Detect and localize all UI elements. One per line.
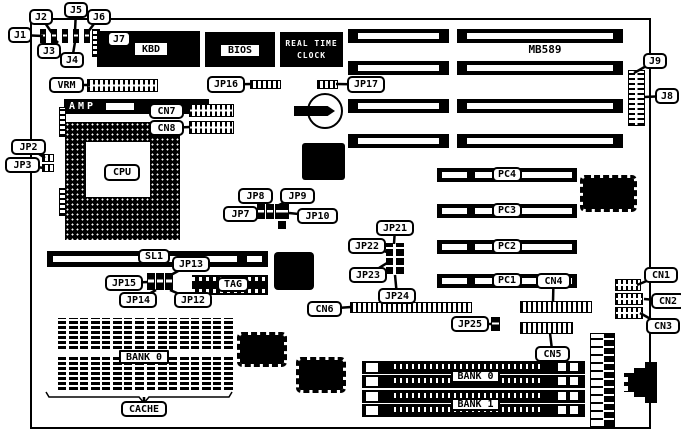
label-cn6: CN6	[307, 301, 342, 317]
label-jp12: JP12	[174, 292, 212, 308]
jp25-jumper	[491, 317, 500, 331]
label-jp25: JP25	[451, 316, 489, 332]
label-pc1: PC1	[492, 273, 522, 288]
din-notch-lower	[624, 386, 628, 391]
label-jp13: JP13	[172, 256, 210, 272]
amp-bar: AMP	[64, 99, 209, 114]
isa-slot-4-right	[457, 134, 623, 148]
label-vrm: VRM	[49, 77, 84, 93]
isa-slot-1-left	[348, 29, 449, 43]
sl1-slot-key	[237, 256, 247, 262]
label-jp14: JP14	[119, 292, 157, 308]
isa-slot-1-right	[457, 29, 623, 43]
cn5-connector	[520, 322, 573, 334]
jumper-j1	[40, 29, 46, 43]
label-cn5: CN5	[535, 346, 570, 362]
label-tag: TAG	[217, 277, 249, 292]
label-jp23: JP23	[349, 267, 387, 283]
label-bank0-simm: BANK 0	[451, 370, 500, 383]
label-cn7: CN7	[149, 103, 184, 119]
label-jp21: JP21	[376, 220, 414, 236]
jp10-pad	[278, 221, 286, 229]
jp21-24-jumper-block	[386, 243, 404, 274]
qfp-chip-left	[237, 332, 287, 367]
label-model: MB589	[505, 42, 585, 56]
din-connector	[645, 362, 657, 403]
label-bank0-cache: BANK 0	[119, 350, 169, 364]
label-j6: J6	[87, 9, 111, 25]
jp15-jumper	[147, 273, 155, 290]
label-j1: J1	[8, 27, 32, 43]
j8-j9-power-connector	[628, 70, 645, 126]
label-cn2: CN2	[651, 293, 681, 309]
label-bios: BIOS	[219, 43, 261, 58]
jp14-jumper	[156, 273, 164, 290]
jp16-jumper	[250, 80, 281, 89]
din-connector-step	[634, 368, 645, 397]
label-cn4: CN4	[536, 273, 571, 289]
chipset-chip-middle	[274, 252, 314, 290]
label-jp22: JP22	[348, 238, 386, 254]
amp-label: AMP	[69, 101, 96, 112]
cn1-connector	[615, 279, 641, 291]
jumper-j3	[62, 29, 68, 43]
jp7-jumper	[257, 204, 265, 219]
label-jp24: JP24	[378, 288, 416, 304]
cache-chip	[213, 318, 233, 351]
isa-slot-4-left	[348, 134, 449, 148]
label-cache: CACHE	[121, 401, 167, 417]
cache-chip	[169, 318, 189, 351]
qfp-chip-bottom	[296, 357, 346, 393]
jp9-jp10-jumper	[275, 204, 289, 219]
label-jp17: JP17	[347, 76, 385, 93]
battery-clip	[294, 106, 335, 116]
cache-chip	[191, 355, 211, 392]
jumper-j2	[51, 29, 57, 43]
label-jp16: JP16	[207, 76, 245, 93]
label-jp15: JP15	[105, 275, 143, 291]
jp17-jumper	[317, 80, 338, 89]
label-j7: J7	[107, 31, 131, 47]
label-sl1: SL1	[138, 249, 170, 264]
label-pc3: PC3	[492, 203, 522, 218]
label-j3: J3	[37, 43, 61, 59]
cache-chip	[80, 355, 100, 392]
rtc-label-line2: CLOCK	[297, 50, 326, 61]
label-j4: J4	[60, 52, 84, 68]
label-jp9: JP9	[280, 188, 315, 204]
cache-chip	[124, 318, 144, 351]
cache-chip	[58, 318, 78, 351]
qfp-chip-right	[580, 175, 637, 212]
cn7-connector	[189, 104, 234, 117]
label-cn1: CN1	[644, 267, 678, 283]
jumper-j4	[73, 29, 79, 43]
label-jp10: JP10	[297, 208, 338, 224]
label-cn3: CN3	[646, 318, 680, 334]
label-jp8: JP8	[238, 188, 273, 204]
label-j2: J2	[29, 9, 53, 25]
cn8-connector	[189, 121, 234, 134]
label-j9: J9	[643, 53, 667, 69]
jp2-jumper	[42, 154, 54, 162]
jp8-jumper	[266, 204, 274, 219]
label-kbd: KBD	[133, 41, 169, 57]
cache-chip	[147, 318, 167, 351]
rtc-label-line1: REAL TIME	[285, 38, 337, 49]
cache-chip	[80, 318, 100, 351]
vrm-connector	[87, 79, 158, 92]
terminator-strip	[590, 333, 615, 427]
socket-clip-lower	[59, 188, 66, 216]
jp13-jumper	[165, 273, 173, 290]
cpu-socket	[65, 122, 180, 240]
cache-chip	[169, 355, 189, 392]
isa-slot-3-right	[457, 99, 623, 113]
din-notch-upper	[624, 377, 628, 382]
label-jp3: JP3	[5, 157, 40, 173]
label-bank1-simm: BANK 1	[451, 398, 500, 411]
isa-slot-3-left	[348, 99, 449, 113]
amp-window	[106, 103, 134, 110]
label-cn8: CN8	[149, 120, 184, 136]
cache-chip	[58, 355, 78, 392]
jp3-jumper	[42, 164, 54, 172]
label-jp7: JP7	[223, 206, 258, 222]
cn3-connector	[615, 307, 643, 319]
cache-chip	[102, 318, 122, 351]
label-pc4: PC4	[492, 167, 522, 182]
cache-chip	[213, 355, 233, 392]
chipset-chip-upper	[302, 143, 345, 180]
isa-slot-2-right	[457, 61, 623, 75]
socket-clip-upper	[59, 107, 66, 137]
label-j5: J5	[64, 2, 88, 18]
label-cpu: CPU	[104, 164, 140, 181]
jumper-j5	[84, 29, 90, 43]
motherboard-diagram: REAL TIME CLOCK AMP	[0, 0, 681, 433]
label-jp2: JP2	[11, 139, 46, 155]
label-pc2: PC2	[492, 239, 522, 254]
cn2-connector	[615, 293, 643, 305]
cn4-connector	[520, 301, 592, 313]
label-j8: J8	[655, 88, 679, 104]
isa-slot-2-left	[348, 61, 449, 75]
cache-chip	[191, 318, 211, 351]
rtc-chip: REAL TIME CLOCK	[280, 32, 343, 67]
